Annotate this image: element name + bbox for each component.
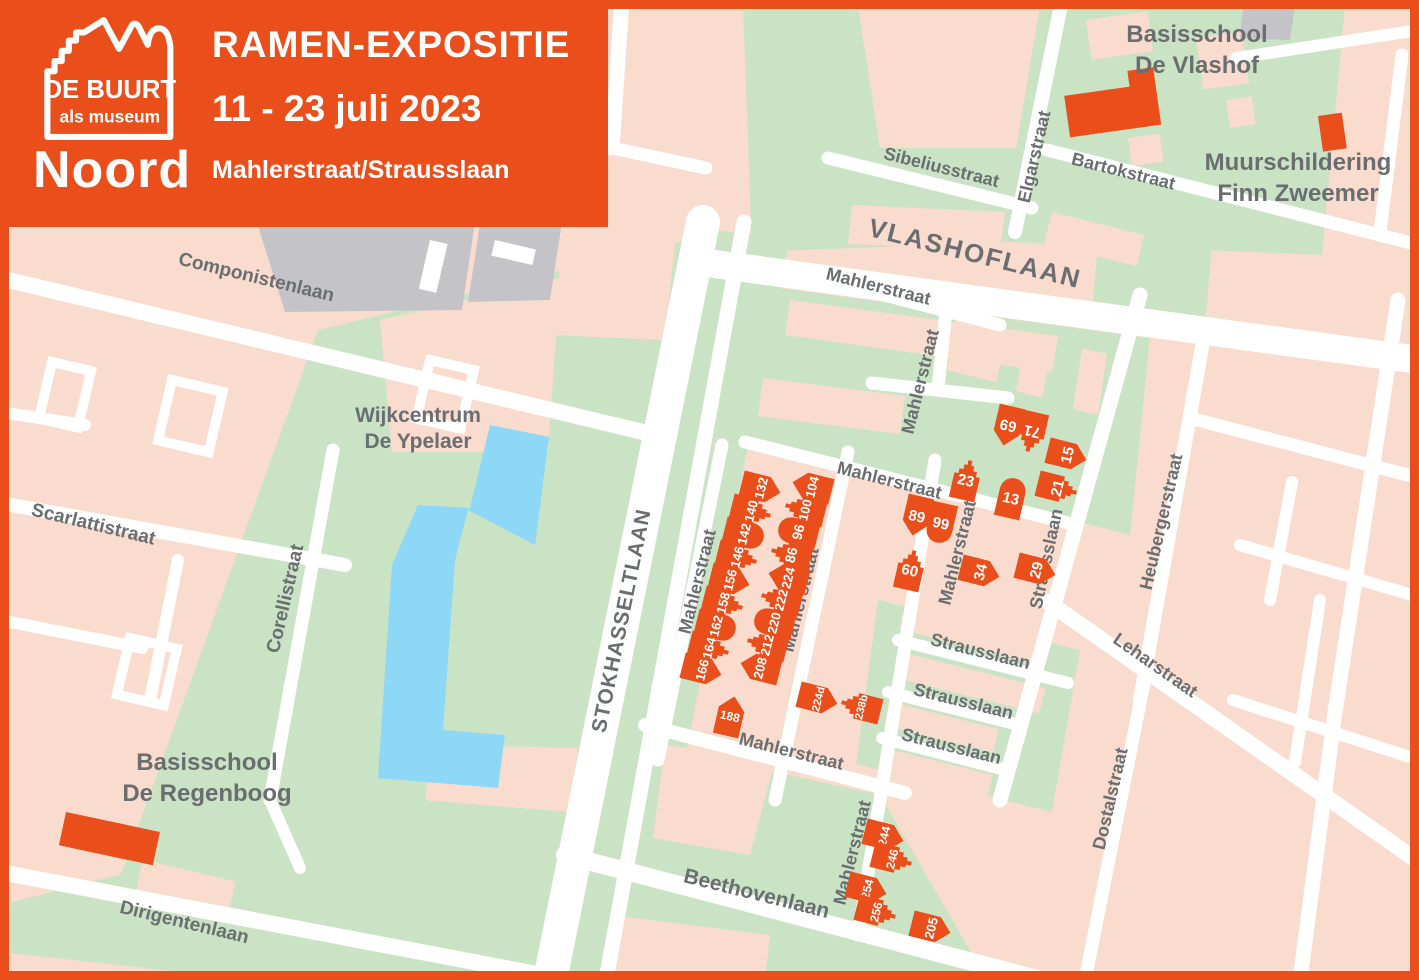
expo-title: RAMEN-EXPOSITIE (212, 24, 570, 66)
street-stub (612, 0, 622, 148)
logo-text-line2: als museum (60, 107, 161, 127)
buurt-als-museum-logo: DE BUURT als museum (36, 16, 196, 141)
landmark-label: De Vlashof (1135, 52, 1260, 79)
expo-dates: 11 - 23 juli 2023 (212, 88, 570, 130)
region-name: Noord (33, 140, 191, 200)
landmark-label: Muurschildering (1205, 149, 1392, 176)
landmark-label: De Ypelaer (364, 430, 471, 453)
logo-text-line1: DE BUURT (44, 76, 177, 104)
poster-header: DE BUURT als museum Noord RAMEN-EXPOSITI… (0, 0, 608, 227)
expo-location: Mahlerstraat/Strausslaan (212, 156, 570, 185)
landmark-label: Finn Zweemer (1217, 180, 1378, 207)
landmark-label: Wijkcentrum (355, 404, 481, 427)
landmark-label: Basisschool (136, 749, 277, 776)
mural-marker (1318, 113, 1347, 152)
landmark-label: De Regenboog (122, 780, 291, 807)
landmark-label: Basisschool (1126, 21, 1267, 48)
map-poster: ComponistenlaanScarlattistraatCorellistr… (0, 0, 1419, 980)
